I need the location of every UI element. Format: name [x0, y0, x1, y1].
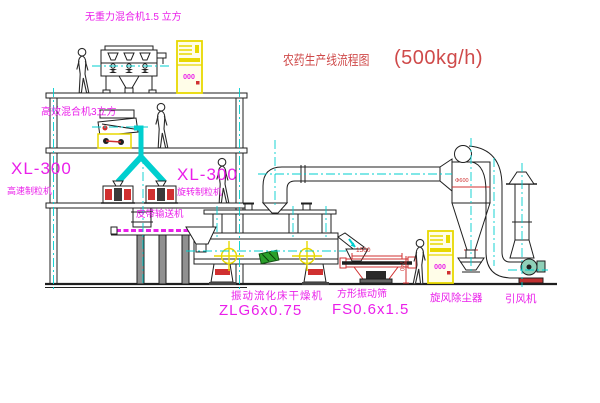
- fan-base: [519, 278, 543, 283]
- control-cabinet-right: 000: [428, 231, 453, 283]
- support-column: [182, 235, 189, 284]
- dim-text-cyclone-diameter: Φ600: [455, 179, 469, 185]
- cabinet-display-text: 000: [434, 264, 446, 271]
- label-induced-draft-fan: 引风机: [505, 294, 537, 305]
- label-high-efficiency-mixer: 高效混合机3立方: [41, 108, 117, 118]
- vibrating-sieve: [340, 253, 420, 283]
- exhaust-stack: [506, 172, 537, 258]
- diagram-title: 农药生产线流程图 (500kg/h): [283, 47, 483, 70]
- worker-figure-2: [156, 103, 168, 147]
- label-granulator-right-name: 旋转制粒机: [177, 188, 222, 197]
- mixer-discharge-funnel: [119, 76, 139, 88]
- label-granulator-left-model: XL-300: [11, 160, 72, 177]
- label-gravity-free-mixer: 无重力混合机1.5 立方: [85, 13, 182, 23]
- granulator-left: [101, 181, 135, 203]
- label-vibrating-sieve-name: 方形振动筛: [337, 290, 387, 300]
- control-cabinet-top: 000: [177, 41, 202, 93]
- worker-figure-1: [77, 48, 89, 92]
- diagram-title-chinese: 农药生产线流程图: [283, 49, 369, 69]
- belt-conveyor: [111, 227, 203, 284]
- label-belt-conveyor: 皮带输送机: [136, 210, 184, 220]
- exhaust-duct: [263, 159, 452, 213]
- granulator-right: [144, 181, 178, 203]
- mixer-red-dot: [103, 126, 108, 131]
- dim-text-1500: 1500: [356, 248, 370, 255]
- dim-text-740: 740: [398, 261, 404, 271]
- cyclone-outlet-elbow: [455, 146, 472, 163]
- diagram-title-capacity: (500kg/h): [394, 47, 483, 70]
- process-flow-diagram: 000: [0, 0, 600, 403]
- induced-draft-fan: [519, 259, 545, 283]
- gravity-free-mixer: [101, 46, 166, 93]
- label-fluid-bed-dryer-model: ZLG6x0.75: [219, 303, 302, 318]
- cabinet-display-text: 000: [183, 74, 195, 81]
- label-granulator-left-name: 高速制粒机: [7, 187, 52, 196]
- fluid-bed-dryer: [186, 204, 368, 286]
- label-vibrating-sieve-model: FS0.6x1.5: [332, 302, 409, 317]
- label-cyclone-dust-collector: 旋风除尘器: [430, 293, 483, 304]
- label-granulator-right-model: XL-300: [177, 166, 238, 183]
- stack-cap: [509, 172, 534, 184]
- label-fluid-bed-dryer-name: 振动流化床干燥机: [231, 291, 323, 302]
- duct-reducer: [440, 159, 452, 191]
- support-column: [159, 235, 166, 284]
